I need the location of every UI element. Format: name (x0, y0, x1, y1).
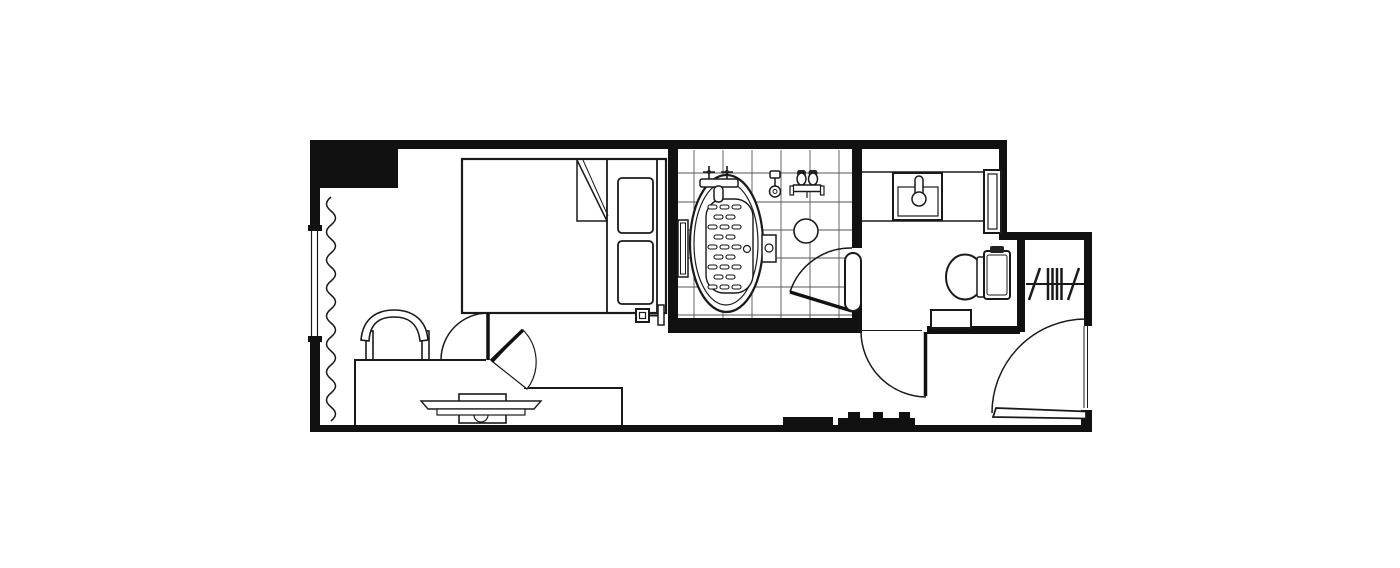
toilet-step (931, 310, 971, 328)
tv (421, 394, 541, 423)
bathroom-door (790, 248, 861, 311)
door-panel (845, 253, 861, 311)
vanity-counter (862, 170, 1001, 233)
window (308, 225, 322, 342)
pillows (618, 178, 653, 304)
closet-rail (1026, 268, 1084, 300)
bedside-control (636, 305, 664, 325)
shower-mixer (790, 170, 824, 198)
threshold-blocks (783, 412, 915, 427)
sink (893, 173, 942, 220)
bathtub (690, 175, 763, 312)
toilet (946, 246, 1010, 300)
pivot-partition-door (441, 313, 536, 389)
shower-stool (794, 219, 818, 243)
hand-shower (770, 171, 781, 197)
chair (361, 310, 429, 360)
toilet-door (858, 331, 926, 398)
curtain-icon (327, 197, 336, 421)
vanity-shelf (984, 170, 1001, 233)
tub-control (762, 235, 776, 262)
floor-plan (0, 0, 1400, 568)
bed (462, 159, 666, 313)
wall-caddy (678, 220, 688, 277)
